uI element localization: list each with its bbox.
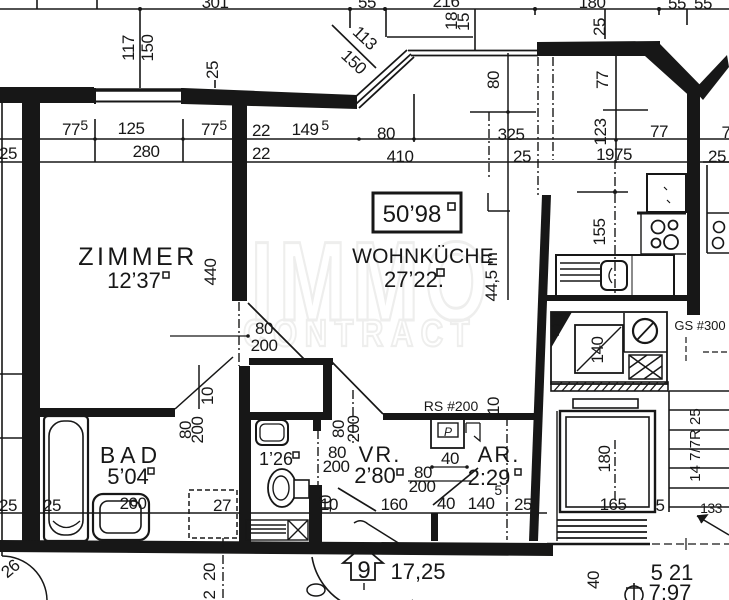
svg-text:155: 155 <box>590 219 609 246</box>
svg-text:160: 160 <box>381 495 408 514</box>
svg-text:25: 25 <box>43 496 61 515</box>
svg-text:5: 5 <box>321 117 329 133</box>
svg-text:1’26: 1’26 <box>259 449 293 469</box>
svg-text:5: 5 <box>494 482 502 498</box>
svg-text:20: 20 <box>200 563 219 581</box>
svg-text:10: 10 <box>484 397 503 415</box>
svg-text:27: 27 <box>213 496 231 515</box>
svg-text:40: 40 <box>441 449 459 468</box>
svg-text:RS #200: RS #200 <box>424 398 479 414</box>
svg-text:440: 440 <box>201 259 220 286</box>
svg-text:55: 55 <box>358 0 376 12</box>
svg-text:WOHNKÜCHE: WOHNKÜCHE <box>352 245 494 268</box>
svg-text:325: 325 <box>498 125 525 144</box>
svg-text:GS #300: GS #300 <box>674 318 725 333</box>
svg-text:150: 150 <box>138 35 157 62</box>
svg-text:55: 55 <box>694 0 712 13</box>
svg-text:2: 2 <box>200 590 219 599</box>
svg-text:10: 10 <box>198 387 217 405</box>
svg-text:25: 25 <box>203 61 222 79</box>
svg-text:25: 25 <box>513 147 531 166</box>
svg-text:5: 5 <box>219 117 227 133</box>
svg-text:200: 200 <box>188 417 207 444</box>
svg-text:140: 140 <box>468 494 495 513</box>
svg-text:12’37: 12’37 <box>107 268 161 293</box>
svg-text:9: 9 <box>357 557 370 584</box>
svg-text:123: 123 <box>591 119 610 146</box>
svg-text:25: 25 <box>514 495 532 514</box>
svg-text:22: 22 <box>252 144 270 163</box>
svg-text:50’98: 50’98 <box>383 201 442 228</box>
svg-text:80: 80 <box>377 124 395 143</box>
svg-text:25: 25 <box>708 147 726 166</box>
svg-text:55: 55 <box>668 0 686 13</box>
svg-text:1975: 1975 <box>596 145 632 164</box>
svg-text:280: 280 <box>133 142 160 161</box>
svg-text:77: 77 <box>593 71 612 89</box>
svg-text:ZIMMER: ZIMMER <box>78 243 198 271</box>
svg-text:17,25: 17,25 <box>390 559 445 584</box>
svg-text:200: 200 <box>120 494 147 513</box>
svg-text:27’22.: 27’22. <box>384 267 444 292</box>
svg-text:200: 200 <box>409 477 436 496</box>
svg-text:200: 200 <box>323 457 350 476</box>
svg-text:7:97: 7:97 <box>649 580 692 600</box>
svg-text:7: 7 <box>722 123 729 142</box>
svg-text:P: P <box>444 425 452 439</box>
svg-text:22: 22 <box>252 121 270 140</box>
svg-text:25: 25 <box>590 18 609 36</box>
svg-text:2’80: 2’80 <box>354 463 396 488</box>
svg-text:25: 25 <box>0 144 17 163</box>
svg-text:77: 77 <box>62 120 80 139</box>
svg-text:165: 165 <box>600 495 627 514</box>
svg-text:5: 5 <box>80 117 88 133</box>
svg-text:77: 77 <box>201 120 219 139</box>
svg-text:44,5 m: 44,5 m <box>482 252 501 301</box>
svg-text:5: 5 <box>656 496 665 515</box>
svg-text:216: 216 <box>433 0 460 11</box>
svg-text:117: 117 <box>119 35 138 61</box>
svg-text:125: 125 <box>118 119 145 138</box>
svg-text:180: 180 <box>595 446 614 473</box>
svg-text:149: 149 <box>292 120 319 139</box>
svg-text:40: 40 <box>584 571 603 589</box>
svg-text:180: 180 <box>579 0 606 12</box>
svg-text:410: 410 <box>387 147 414 166</box>
svg-text:15: 15 <box>454 13 473 31</box>
svg-text:200: 200 <box>251 336 278 355</box>
svg-text:40: 40 <box>437 494 455 513</box>
svg-text:77: 77 <box>650 122 668 141</box>
svg-text:14 7/7R 25: 14 7/7R 25 <box>687 408 704 481</box>
svg-text:301: 301 <box>202 0 229 12</box>
svg-text:10: 10 <box>316 495 335 513</box>
svg-text:2:29: 2:29 <box>468 465 511 490</box>
svg-text:133: 133 <box>700 500 723 516</box>
svg-text:80: 80 <box>484 71 503 89</box>
svg-text:AR.: AR. <box>478 442 521 467</box>
svg-text:140: 140 <box>588 337 607 364</box>
svg-text:5’04: 5’04 <box>107 464 149 489</box>
svg-text:25: 25 <box>0 496 17 515</box>
